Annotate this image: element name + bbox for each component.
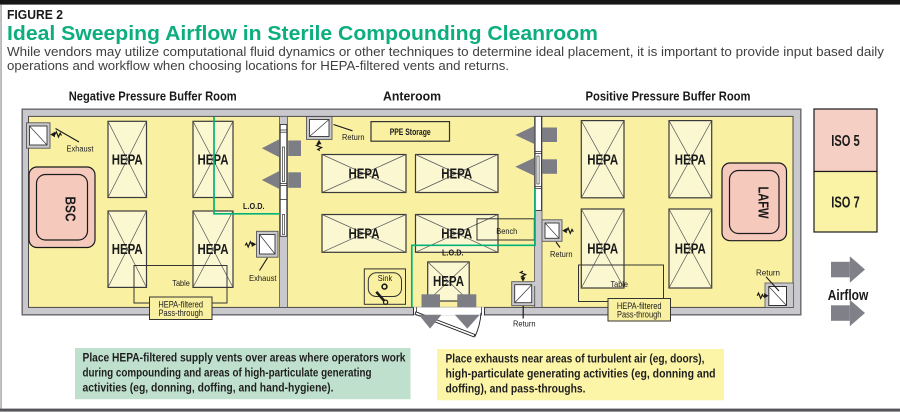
- svg-text:during compounding and areas o: during compounding and areas of high-par…: [83, 366, 372, 380]
- svg-text:Airflow: Airflow: [828, 287, 869, 304]
- svg-text:Return: Return: [550, 249, 573, 259]
- svg-text:Table: Table: [611, 279, 629, 289]
- svg-text:BSC: BSC: [62, 197, 79, 222]
- svg-text:Table: Table: [172, 278, 190, 288]
- svg-text:HEPA: HEPA: [675, 242, 706, 258]
- svg-text:Exhaust: Exhaust: [67, 143, 95, 153]
- svg-text:HEPA: HEPA: [675, 153, 706, 169]
- svg-text:While vendors may utilize comp: While vendors may utilize computational …: [7, 45, 885, 59]
- svg-text:Ideal Sweeping Airflow in Ster: Ideal Sweeping Airflow in Sterile Compou…: [7, 23, 598, 45]
- svg-text:ISO 7: ISO 7: [831, 195, 860, 212]
- svg-text:Return: Return: [513, 319, 536, 329]
- svg-text:LAFW: LAFW: [755, 187, 772, 220]
- svg-text:HEPA: HEPA: [441, 227, 472, 243]
- svg-text:HEPA: HEPA: [112, 242, 143, 258]
- svg-text:Return: Return: [342, 132, 365, 142]
- svg-text:high-particulate generating ac: high-particulate generating activities (…: [446, 367, 716, 381]
- svg-text:Bench: Bench: [496, 226, 517, 236]
- svg-text:ISO 5: ISO 5: [831, 133, 860, 150]
- svg-text:Pass-through: Pass-through: [159, 308, 203, 318]
- svg-text:Return: Return: [756, 268, 780, 278]
- svg-text:Anteroom: Anteroom: [383, 88, 441, 103]
- svg-text:Negative Pressure Buffer Room: Negative Pressure Buffer Room: [69, 88, 237, 103]
- svg-text:HEPA: HEPA: [349, 167, 380, 183]
- svg-text:L.O.D.: L.O.D.: [442, 248, 464, 258]
- svg-text:HEPA: HEPA: [198, 242, 229, 258]
- svg-text:Positive Pressure Buffer Room: Positive Pressure Buffer Room: [586, 88, 751, 103]
- svg-text:doffing), and pass-throughs.: doffing), and pass-throughs.: [446, 382, 586, 396]
- svg-text:Pass-through: Pass-through: [617, 309, 661, 319]
- svg-text:operations and workflow when c: operations and workflow when choosing lo…: [7, 59, 509, 73]
- svg-text:activities (eg, donning, doffi: activities (eg, donning, doffing, and ha…: [83, 381, 334, 395]
- svg-text:HEPA: HEPA: [441, 167, 472, 183]
- svg-text:HEPA: HEPA: [433, 274, 464, 290]
- svg-text:FIGURE 2: FIGURE 2: [7, 7, 63, 22]
- svg-text:Sink: Sink: [378, 273, 393, 283]
- svg-text:HEPA: HEPA: [112, 153, 143, 169]
- svg-text:HEPA: HEPA: [587, 242, 618, 258]
- svg-text:L.O.D.: L.O.D.: [243, 201, 265, 211]
- svg-text:Exhaust: Exhaust: [249, 273, 277, 283]
- svg-text:Place exhausts near areas of t: Place exhausts near areas of turbulent a…: [446, 352, 705, 366]
- svg-text:HEPA: HEPA: [587, 153, 618, 169]
- svg-text:Place HEPA-filtered supply ven: Place HEPA-filtered supply vents over ar…: [83, 351, 406, 365]
- svg-text:HEPA: HEPA: [349, 227, 380, 243]
- svg-text:PPE Storage: PPE Storage: [390, 127, 431, 138]
